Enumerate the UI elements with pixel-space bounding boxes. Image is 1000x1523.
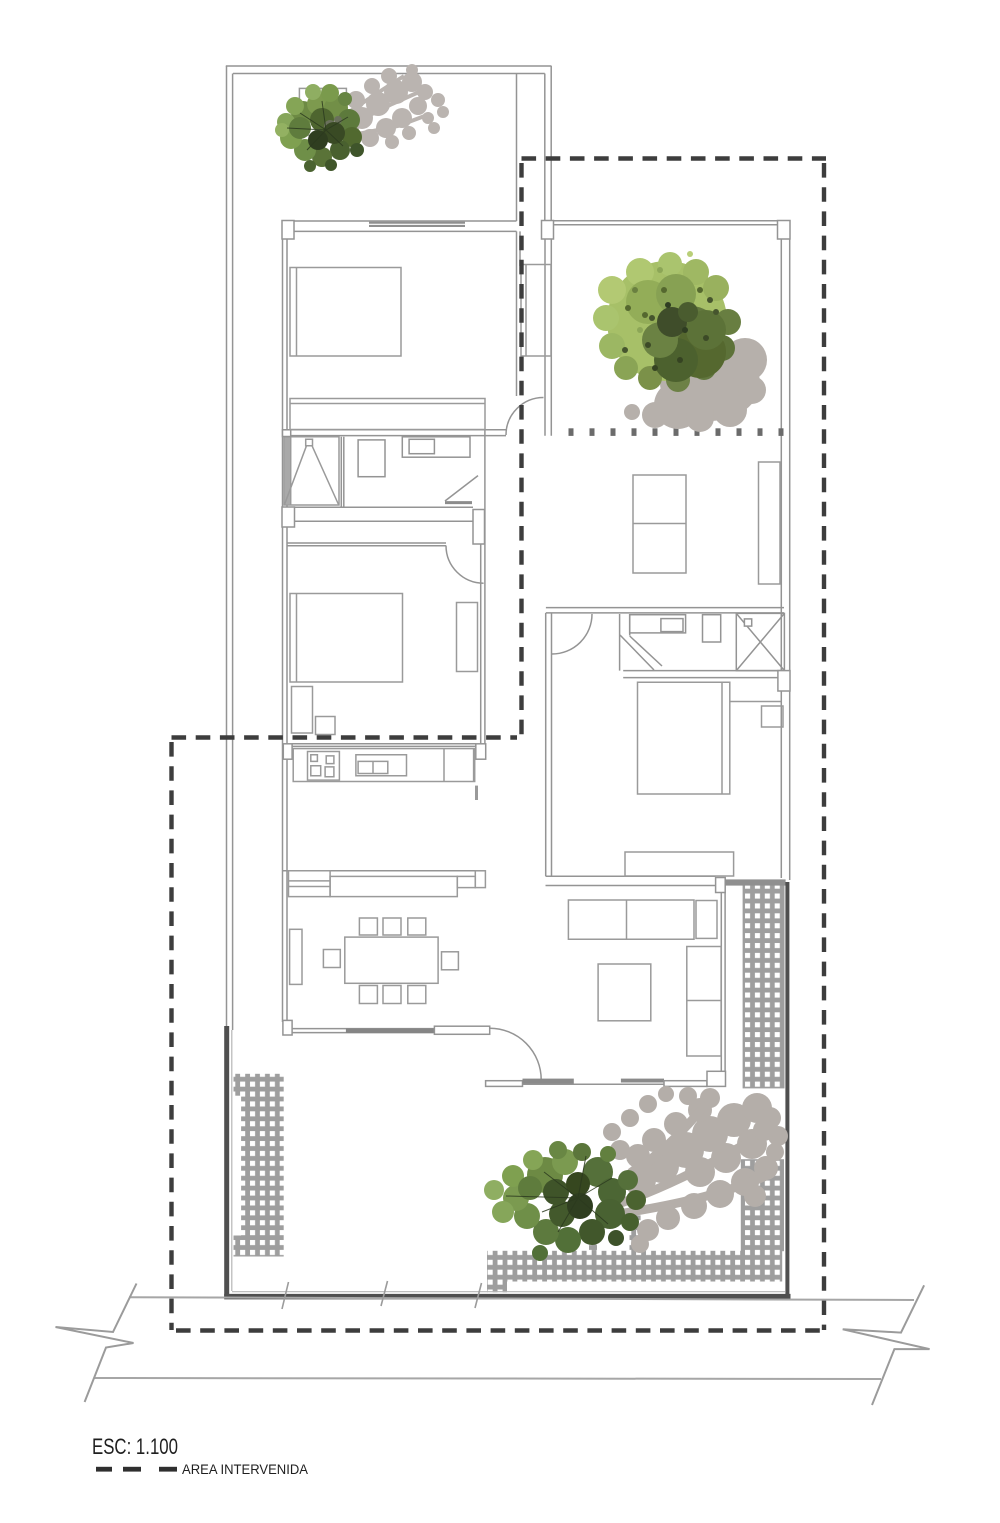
svg-text:ESC: 1.100: ESC: 1.100 bbox=[92, 1434, 178, 1459]
svg-text:AREA INTERVENIDA: AREA INTERVENIDA bbox=[182, 1462, 308, 1477]
